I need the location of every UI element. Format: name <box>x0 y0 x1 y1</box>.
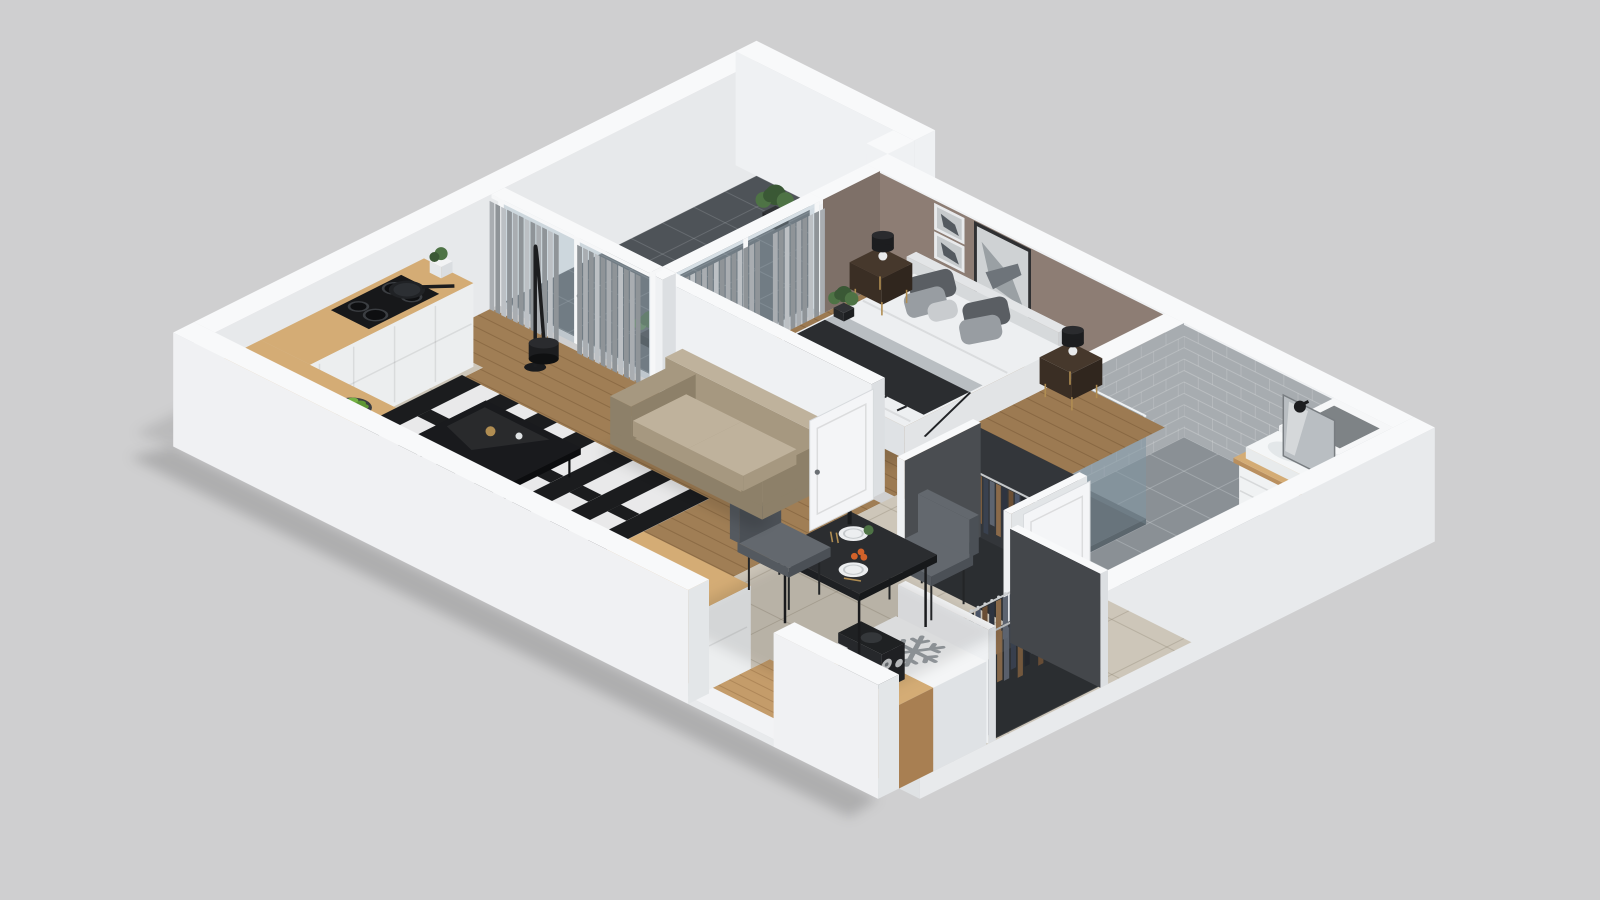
render-backdrop <box>0 0 1600 900</box>
apartment-3d-floorplan <box>0 0 1600 900</box>
